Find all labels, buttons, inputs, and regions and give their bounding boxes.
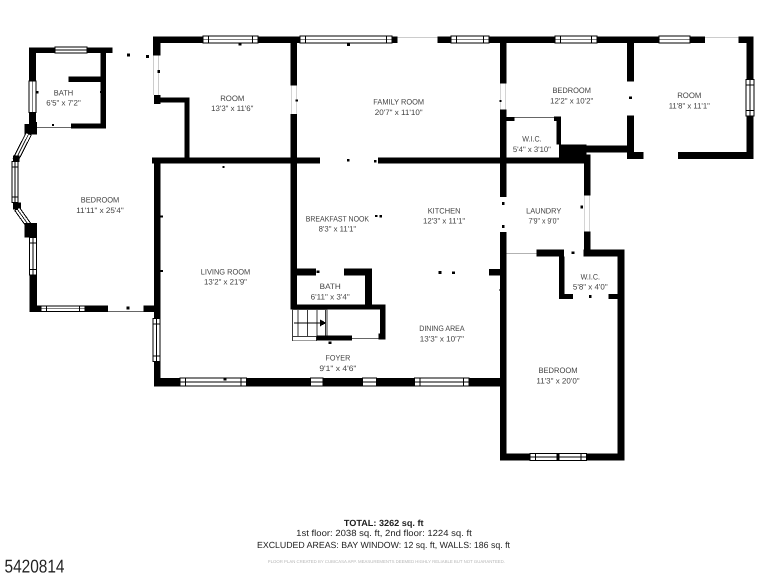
svg-text:FLOOR PLAN CREATED BY CUBICASA: FLOOR PLAN CREATED BY CUBICASA APP. MEAS… (268, 559, 505, 564)
svg-text:6'11" x 3'4": 6'11" x 3'4" (311, 293, 350, 302)
svg-text:11'8" x 11'1": 11'8" x 11'1" (669, 102, 710, 111)
svg-text:13'3" x 11'6": 13'3" x 11'6" (211, 104, 253, 113)
svg-text:BEDROOM: BEDROOM (538, 366, 577, 375)
svg-text:5420814: 5420814 (5, 555, 65, 576)
svg-text:20'7" x 11'10": 20'7" x 11'10" (375, 108, 423, 117)
svg-text:TOTAL: 3262 sq. ft: TOTAL: 3262 sq. ft (344, 518, 424, 528)
svg-text:KITCHEN: KITCHEN (428, 206, 461, 215)
svg-text:9'1" x 4'6": 9'1" x 4'6" (319, 364, 356, 373)
svg-text:DINING AREA: DINING AREA (419, 324, 465, 333)
svg-text:13'2" x 21'9": 13'2" x 21'9" (204, 278, 247, 287)
svg-text:BEDROOM: BEDROOM (552, 86, 591, 95)
svg-text:5'4" x 3'10": 5'4" x 3'10" (513, 145, 551, 154)
svg-text:ROOM: ROOM (677, 91, 701, 100)
svg-text:7'9" x 9'0": 7'9" x 9'0" (528, 217, 559, 226)
svg-text:W.I.C.: W.I.C. (581, 272, 600, 281)
svg-text:13'3" x 10'7": 13'3" x 10'7" (420, 335, 464, 344)
svg-text:6'5" x 7'2": 6'5" x 7'2" (46, 99, 81, 108)
svg-text:8'3" x 11'1": 8'3" x 11'1" (319, 225, 357, 234)
svg-text:BATH: BATH (54, 88, 74, 97)
svg-text:W.I.C.: W.I.C. (522, 135, 541, 144)
svg-text:1st floor: 2038 sq. ft, 2nd fl: 1st floor: 2038 sq. ft, 2nd floor: 1224 … (296, 528, 472, 538)
svg-text:5'8" x 4'0": 5'8" x 4'0" (573, 283, 608, 292)
svg-text:FOYER: FOYER (326, 354, 351, 363)
svg-text:FAMILY ROOM: FAMILY ROOM (373, 98, 424, 107)
svg-text:EXCLUDED AREAS: BAY WINDOW: 12: EXCLUDED AREAS: BAY WINDOW: 12 sq. ft, W… (257, 540, 511, 550)
svg-text:BATH: BATH (320, 282, 341, 291)
svg-text:LAUNDRY: LAUNDRY (526, 206, 562, 215)
svg-text:LIVING ROOM: LIVING ROOM (201, 267, 251, 276)
svg-text:11'11" x 25'4": 11'11" x 25'4" (76, 206, 124, 215)
svg-text:12'3" x 11'1": 12'3" x 11'1" (423, 217, 465, 226)
svg-text:BEDROOM: BEDROOM (81, 196, 120, 205)
svg-text:BREAKFAST NOOK: BREAKFAST NOOK (306, 214, 370, 223)
svg-text:12'2" x 10'2": 12'2" x 10'2" (550, 96, 593, 105)
svg-text:11'3" x 20'0": 11'3" x 20'0" (536, 376, 579, 385)
svg-text:ROOM: ROOM (220, 94, 244, 103)
